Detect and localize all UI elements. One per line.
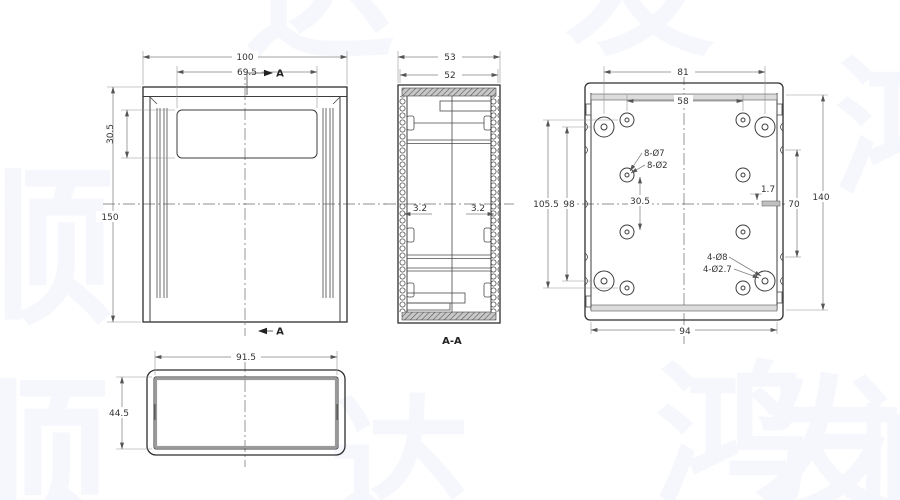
- section-arrow-bottom-label: A: [276, 327, 284, 338]
- dim-front-window-height: 30.5: [106, 124, 116, 144]
- dim-back-notch-span: 70: [788, 200, 800, 210]
- dim-section-inner-width: 52: [444, 71, 455, 81]
- dim-bottom-height: 44.5: [109, 409, 129, 419]
- dim-back-inner-hole-span: 58: [677, 97, 689, 107]
- dim-back-overall-height: 140: [812, 193, 829, 203]
- back-view: 81 58 105.5 98 30.5: [531, 66, 835, 344]
- dim-front-outer-width: 100: [236, 53, 253, 63]
- dim-wall-thickness-right: 3.2: [471, 204, 485, 214]
- dim-bottom-width: 91.5: [236, 353, 256, 363]
- dim-section-outer-width: 53: [444, 53, 455, 63]
- front-view: 100 69.5 150 30.5 A: [96, 51, 387, 338]
- callout-small-hole-outer: 8-Ø7: [644, 148, 665, 159]
- section-bottom-hatch: [402, 312, 496, 320]
- front-panel-window: [177, 110, 317, 158]
- drawing-canvas: 顺 顺 达 发 鸿 鸿 发 达 顺: [0, 0, 900, 500]
- callout-corner-hole-outer: 4-Ø8: [707, 252, 728, 263]
- dim-back-center-to-hole: 30.5: [630, 197, 650, 207]
- callout-corner-hole-inner: 4-Ø2.7: [703, 264, 732, 275]
- section-top-hatch: [402, 88, 496, 96]
- back-edge-slot: [762, 201, 780, 206]
- dim-back-bottom-width: 94: [679, 327, 691, 337]
- back-bottom-lip: [591, 305, 777, 311]
- back-view-hole-callouts: 8-Ø7 8-Ø2 4-Ø8 4-Ø2.7: [630, 148, 761, 278]
- dim-back-hole-span-width: 81: [677, 68, 688, 78]
- bottom-view-outline: [147, 370, 345, 455]
- front-view-section-arrows: A A: [247, 69, 284, 338]
- section-view: 53 52 3.2 3.2 A-A: [384, 51, 514, 347]
- dim-back-hole-rows-height: 105.5: [533, 200, 559, 210]
- technical-drawing: 100 69.5 150 30.5 A: [0, 0, 900, 500]
- section-view-label: A-A: [442, 336, 462, 347]
- callout-small-hole-inner: 8-Ø2: [647, 160, 668, 171]
- section-left-wall: [399, 96, 407, 312]
- section-view-dimensions: 53 52 3.2 3.2: [398, 51, 500, 214]
- back-view-dimensions: 81 58 105.5 98 30.5: [531, 66, 835, 337]
- dim-wall-thickness-left: 3.2: [413, 204, 427, 214]
- dim-front-height: 150: [101, 213, 118, 223]
- bottom-view: 91.5 44.5: [104, 351, 345, 467]
- dim-back-slot: 1.7: [761, 185, 775, 195]
- section-right-wall: [491, 96, 499, 312]
- back-view-centerlines: [542, 73, 802, 344]
- section-arrow-top-label: A: [276, 69, 284, 80]
- section-arrow-top-icon: [264, 70, 273, 76]
- front-view-centerlines: [103, 68, 387, 336]
- bottom-view-dimensions: 91.5 44.5: [104, 351, 337, 449]
- front-view-dimensions: 100 69.5 150 30.5: [96, 51, 347, 322]
- section-arrow-bottom-icon: [258, 328, 267, 334]
- dim-back-corner-hole-height: 98: [563, 200, 575, 210]
